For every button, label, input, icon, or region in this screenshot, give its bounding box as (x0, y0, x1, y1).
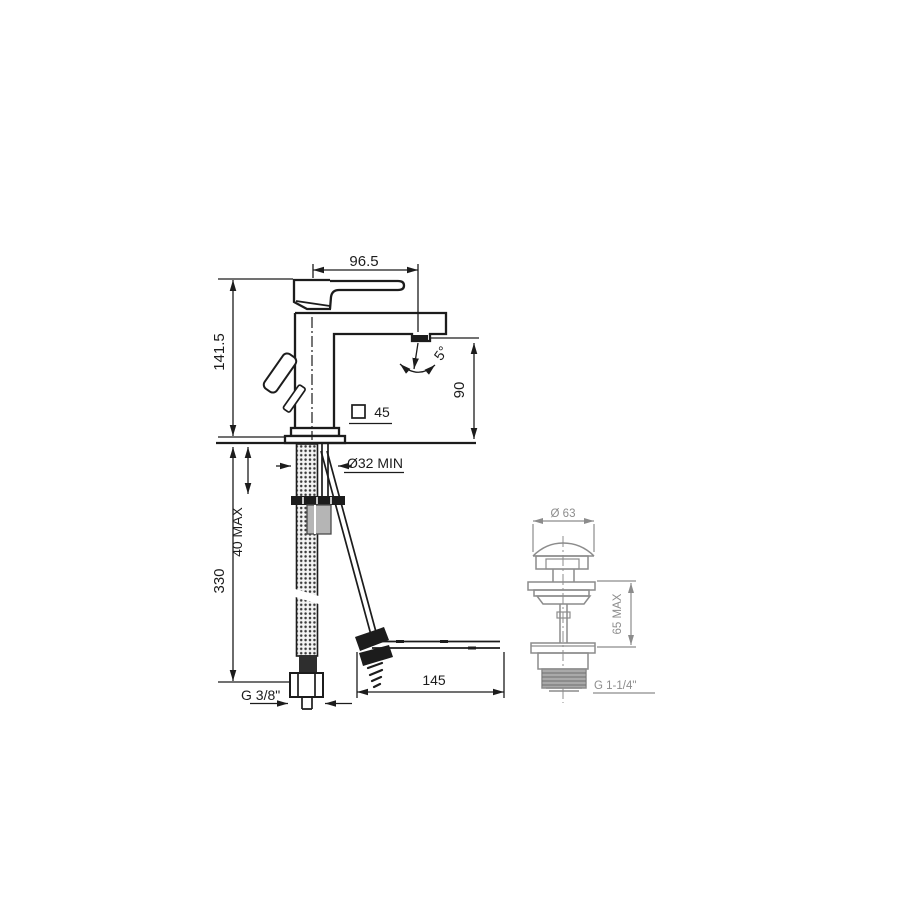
swivel-angle-label: 5° (431, 343, 452, 363)
shank-body (307, 505, 331, 534)
hex-nut (290, 673, 323, 697)
rod-reach-label: 145 (422, 672, 446, 688)
technical-drawing-canvas: 96.5 141.5 5° 90 45 Ø32 MIN 40 MAX 330 G… (0, 0, 900, 900)
horizontal-rod (372, 642, 500, 649)
swivel-arc (400, 364, 435, 372)
swivel-indicator (400, 343, 435, 372)
hose-inlet-fitting (290, 655, 323, 709)
inlet-thread-label: G 3/8" (241, 687, 280, 703)
waste-cap-diameter-label: Ø 63 (551, 508, 576, 520)
overall-height-label: 141.5 (211, 333, 228, 371)
base-upper (291, 428, 339, 436)
spout-outline (295, 313, 446, 428)
spout-reach-label: 96.5 (349, 253, 378, 270)
aerator (412, 335, 428, 341)
side-lever (262, 351, 306, 412)
mounting-nut (291, 496, 345, 505)
base-square-label: 45 (374, 404, 390, 420)
pop-up-rod (321, 451, 500, 687)
waste-flange (528, 582, 595, 590)
fitting-collar (299, 655, 317, 673)
deck-thickness-label: 40 MAX (229, 506, 245, 556)
drain-assembly (528, 521, 655, 703)
hose-length-label: 330 (211, 568, 228, 593)
lever-blade (330, 281, 404, 309)
hole-diameter-label: Ø32 MIN (347, 455, 403, 471)
jet-arrow (414, 343, 418, 369)
fitting-stub (302, 697, 312, 709)
square-symbol (352, 405, 365, 418)
flex-hose (292, 444, 322, 656)
outlet-height-label: 90 (451, 382, 468, 399)
faucet-dimension-drawing: 96.5 141.5 5° 90 45 Ø32 MIN 40 MAX 330 G… (0, 0, 900, 900)
waste-thread-label: G 1-1/4" (594, 680, 636, 692)
dimension-labels: 96.5 141.5 5° 90 45 Ø32 MIN 40 MAX 330 G… (211, 253, 636, 703)
waste-deck-max-label: 65 MAX (612, 593, 624, 634)
faucet-handle (294, 280, 404, 309)
